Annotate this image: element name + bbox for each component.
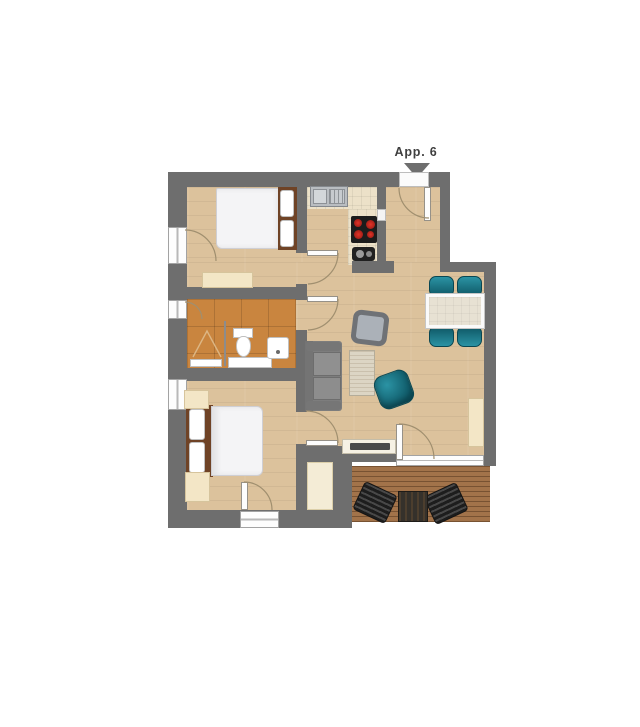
wall-segment xyxy=(440,172,450,262)
window-bedroom-1 xyxy=(168,227,187,264)
wall-segment xyxy=(333,460,352,528)
wall-segment xyxy=(440,262,496,272)
washbasin xyxy=(267,337,289,359)
burner xyxy=(366,220,375,229)
armchair-gray xyxy=(350,309,390,347)
bed-2-pillow xyxy=(189,442,205,473)
washbasin-drain xyxy=(276,350,280,354)
entrance-door-leaf xyxy=(424,187,431,221)
bedroom-1-door-leaf xyxy=(307,250,338,256)
wall-segment xyxy=(296,187,307,253)
sofa xyxy=(305,341,342,411)
apartment-label: App. 6 xyxy=(383,145,449,159)
wall-segment xyxy=(484,272,496,466)
appliance-knob xyxy=(356,250,364,258)
dining-chair xyxy=(457,326,482,347)
bed-1-pillow xyxy=(280,190,294,217)
sink-basin xyxy=(313,189,327,204)
dining-table xyxy=(426,294,484,328)
burner xyxy=(367,231,374,238)
sofa-armrest xyxy=(306,401,341,410)
bed-1-pillow xyxy=(280,220,294,247)
wall-segment xyxy=(352,261,394,273)
balcony-table xyxy=(398,491,428,522)
sofa-armrest xyxy=(306,342,341,351)
kitchen-sink xyxy=(310,186,348,207)
window-bathroom xyxy=(168,300,187,319)
bath-vanity xyxy=(228,357,272,368)
wall-segment xyxy=(296,284,307,300)
wall-segment xyxy=(377,187,386,209)
living-room-cabinet xyxy=(468,398,484,447)
appliance-knob xyxy=(366,251,372,257)
kitchen-appliance xyxy=(352,247,375,261)
toilet-bowl xyxy=(236,336,251,357)
balcony-door-leaf xyxy=(396,424,403,460)
nightstand xyxy=(185,472,210,502)
bed-2-pillow xyxy=(189,409,205,440)
wall-niche xyxy=(377,209,386,221)
wall-segment xyxy=(187,287,307,299)
french-window-bedroom-2 xyxy=(240,511,279,528)
sink-drainer xyxy=(329,189,345,204)
burner xyxy=(354,230,363,239)
balcony-glazing xyxy=(396,455,484,466)
cooktop xyxy=(351,216,377,243)
bedroom-1-sideboard xyxy=(202,272,253,288)
burner xyxy=(354,219,362,227)
floor-plan: App. 6 xyxy=(0,0,640,727)
sofa-cushion xyxy=(313,377,341,400)
coffee-table xyxy=(349,350,375,396)
entrance-opening xyxy=(399,172,429,187)
sofa-cushion xyxy=(313,352,341,376)
nightstand xyxy=(184,390,209,409)
bedroom-2-door-leaf xyxy=(306,440,338,446)
bathroom-door-leaf xyxy=(307,296,338,302)
dining-chair xyxy=(429,326,454,347)
bed-1-duvet xyxy=(216,188,282,249)
wall-segment xyxy=(187,368,307,381)
bed-2-duvet xyxy=(211,406,263,476)
french-window-leaf xyxy=(241,482,248,510)
storage-shaft xyxy=(307,462,333,510)
shower-tray-edge xyxy=(190,359,222,367)
tv xyxy=(350,443,390,450)
wall-segment xyxy=(168,172,400,187)
